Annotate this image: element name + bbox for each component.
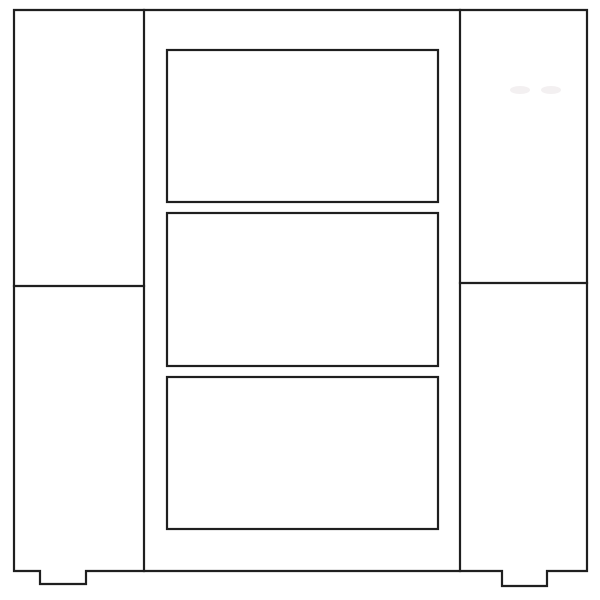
- middle-drawer-panel: [167, 213, 438, 366]
- scan-smudge: [541, 86, 561, 94]
- cabinet-body-outline-with-feet: [14, 10, 587, 586]
- top-drawer-panel: [167, 50, 438, 202]
- scan-smudge: [510, 86, 530, 94]
- bottom-drawer-panel: [167, 377, 438, 529]
- cabinet-front-elevation-diagram: [0, 0, 600, 600]
- scanned-line-drawing-page: [0, 0, 600, 600]
